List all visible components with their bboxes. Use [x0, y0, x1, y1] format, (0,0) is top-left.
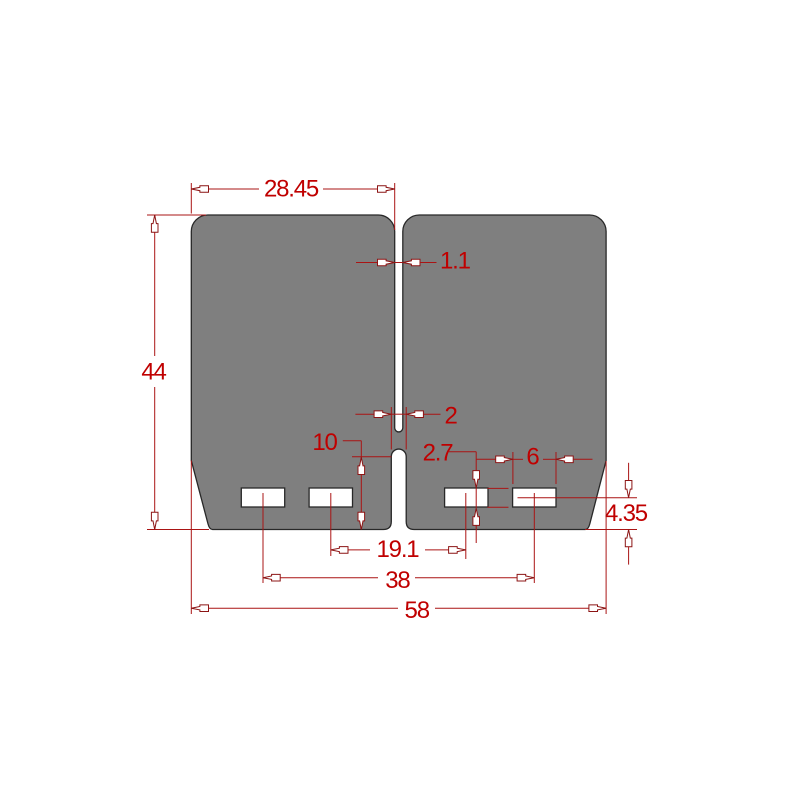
svg-text:28.45: 28.45 [264, 176, 319, 203]
svg-text:58: 58 [405, 597, 430, 624]
svg-text:44: 44 [141, 359, 166, 386]
svg-text:10: 10 [312, 429, 337, 456]
svg-text:4.35: 4.35 [605, 500, 648, 527]
svg-text:2.7: 2.7 [423, 440, 454, 467]
svg-text:2: 2 [445, 403, 458, 430]
svg-text:6: 6 [526, 444, 539, 471]
svg-text:19.1: 19.1 [377, 536, 420, 563]
svg-text:38: 38 [385, 567, 410, 594]
svg-text:1.1: 1.1 [440, 248, 471, 275]
